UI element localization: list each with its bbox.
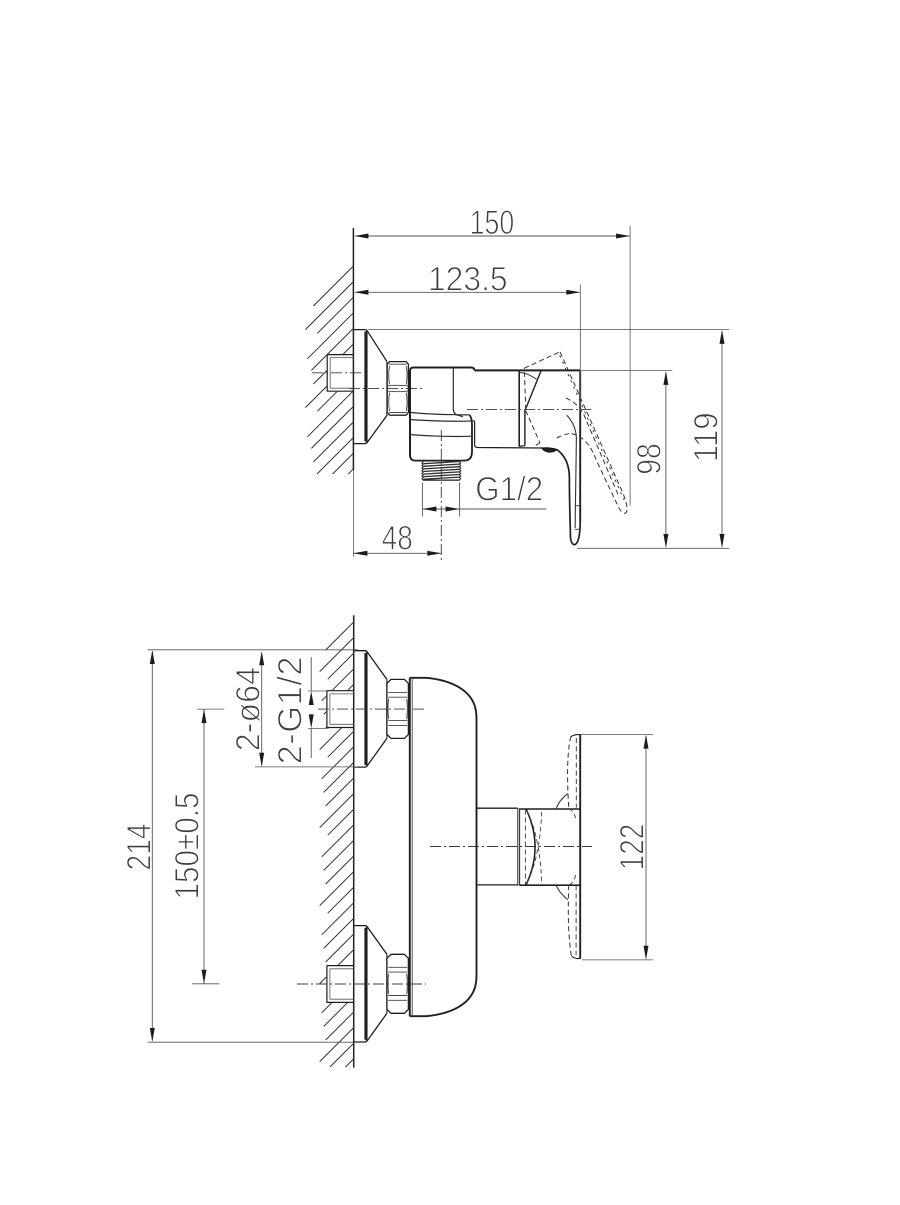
svg-text:122: 122 — [613, 824, 651, 870]
svg-text:G1/2: G1/2 — [475, 470, 543, 508]
svg-text:48: 48 — [382, 520, 413, 558]
svg-text:150: 150 — [470, 204, 515, 242]
svg-text:2-G1/2: 2-G1/2 — [272, 656, 310, 764]
svg-text:123.5: 123.5 — [428, 261, 508, 299]
svg-text:2-ø64: 2-ø64 — [230, 667, 268, 751]
svg-text:119: 119 — [687, 412, 725, 462]
svg-text:98: 98 — [630, 443, 668, 475]
svg-text:150±0.5: 150±0.5 — [168, 793, 206, 900]
svg-text:214: 214 — [121, 824, 159, 871]
